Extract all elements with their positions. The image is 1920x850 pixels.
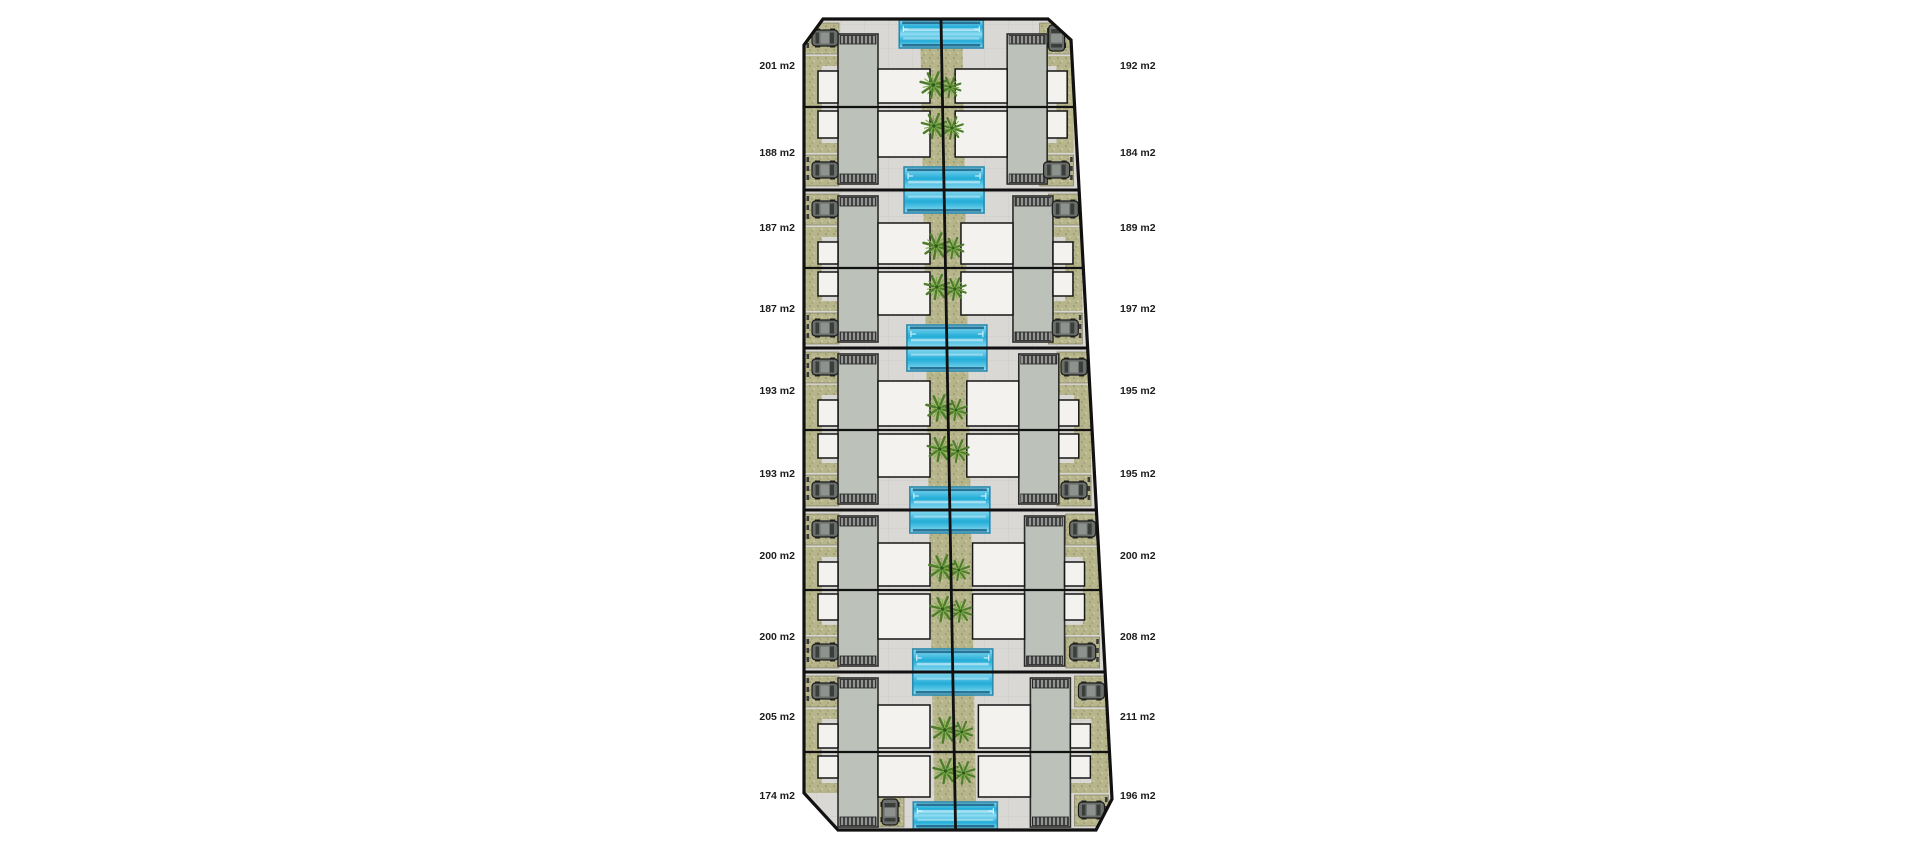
house-room [1047, 111, 1067, 138]
house-room [1059, 434, 1079, 458]
hedge-icon [1079, 315, 1082, 320]
hedge-icon [807, 648, 810, 653]
hedge-icon [807, 363, 810, 368]
house-room [1053, 242, 1073, 264]
hedge-icon [807, 214, 810, 219]
terrace-steps [840, 680, 876, 689]
plot-area-label-right-9: 211 m2 [1120, 711, 1155, 723]
hedge-icon [807, 157, 810, 162]
hedge-icon [807, 175, 810, 180]
hedge-icon [1096, 657, 1099, 662]
hedge-icon [1079, 333, 1082, 338]
hedge-icon [807, 486, 810, 491]
car-icon [1052, 319, 1078, 338]
car-icon [812, 520, 838, 539]
car-icon [812, 358, 838, 377]
hedge-icon [807, 534, 810, 539]
plot-area-label-right-8: 208 m2 [1120, 631, 1156, 643]
plot-area-label-left-10: 174 m2 [759, 790, 795, 802]
terrace-steps [1015, 198, 1051, 207]
hedge-icon [807, 525, 810, 530]
car-icon [1052, 200, 1078, 219]
hedge-icon [807, 687, 810, 692]
hedge-icon [807, 333, 810, 338]
house-room [878, 111, 930, 157]
terrace-steps [1027, 518, 1063, 527]
house-room [955, 69, 1007, 103]
car-icon [812, 319, 838, 338]
house-room [818, 724, 838, 748]
hedge-icon [807, 477, 810, 482]
house-room [818, 756, 838, 778]
house-room [973, 594, 1025, 639]
hedge-icon [1088, 495, 1091, 500]
hedge-icon [807, 205, 810, 210]
hedge-icon [1096, 648, 1099, 653]
terrace-steps [1021, 494, 1057, 503]
terrace-steps [1009, 36, 1045, 45]
house-roof [838, 34, 878, 184]
hedge-icon [1088, 486, 1091, 491]
plot-area-label-right-7: 200 m2 [1120, 550, 1156, 562]
hedge-icon [807, 495, 810, 500]
house-room [1065, 594, 1085, 620]
house-room [967, 381, 1019, 426]
plot-area-label-left-8: 200 m2 [759, 631, 795, 643]
plot-area-label-left-1: 201 m2 [759, 60, 795, 72]
terrace-steps [840, 198, 876, 207]
plot-area-label-left-5: 193 m2 [759, 385, 795, 397]
terrace-steps [840, 174, 876, 183]
hedge-icon [807, 696, 810, 701]
house-room [878, 434, 930, 477]
house-room [818, 562, 838, 586]
house-room [1059, 400, 1079, 426]
plot-area-label-right-2: 184 m2 [1120, 147, 1156, 159]
hedge-icon [807, 324, 810, 329]
house-room [1047, 71, 1067, 103]
house-room [878, 272, 930, 315]
house-room [878, 381, 930, 426]
car-icon [1061, 481, 1087, 500]
house-roof [1007, 34, 1047, 184]
plot-area-label-left-7: 200 m2 [759, 550, 795, 562]
terrace-steps [840, 36, 876, 45]
car-icon [812, 643, 838, 662]
terrace-steps [840, 332, 876, 341]
hedge-icon [1096, 639, 1099, 644]
house-room [978, 705, 1030, 748]
house-room [878, 69, 930, 103]
terrace-steps [840, 656, 876, 665]
car-icon [1070, 520, 1096, 539]
hedge-icon [807, 639, 810, 644]
hedge-icon [807, 678, 810, 683]
terrace-steps [840, 494, 876, 503]
hedge-icon [807, 354, 810, 359]
terrace-steps [1021, 356, 1057, 365]
hedge-icon [1070, 166, 1073, 171]
car-icon [812, 200, 838, 219]
house-room [818, 71, 838, 103]
car-icon [1078, 682, 1104, 701]
plot-area-label-right-3: 189 m2 [1120, 222, 1156, 234]
car-icon [812, 682, 838, 701]
terrace-steps [1009, 174, 1045, 183]
house-room [961, 223, 1013, 264]
house-room [973, 543, 1025, 586]
plot-area-label-right-10: 196 m2 [1120, 790, 1156, 802]
terrace-steps [1032, 817, 1068, 826]
house-room [1065, 562, 1085, 586]
plot-area-label-left-9: 205 m2 [759, 711, 795, 723]
hedge-icon [1105, 797, 1108, 802]
hedge-icon [807, 372, 810, 377]
car-icon [812, 161, 838, 180]
plot-area-label-left-4: 187 m2 [759, 303, 795, 315]
car-icon [1070, 643, 1096, 662]
house-room [878, 756, 930, 797]
site-plan: 201 m2188 m2187 m2187 m2193 m2193 m2200 … [0, 0, 1920, 850]
car-icon [812, 481, 838, 500]
hedge-icon [1070, 25, 1073, 30]
plot-area-label-right-5: 195 m2 [1120, 385, 1156, 397]
hedge-icon [1088, 477, 1091, 482]
terrace-steps [840, 518, 876, 527]
car-icon [1061, 358, 1087, 377]
house-room [818, 400, 838, 426]
site-plan-page: 201 m2188 m2187 m2187 m2193 m2193 m2200 … [0, 0, 1920, 850]
hedge-icon [807, 25, 810, 30]
house-room [818, 594, 838, 620]
house-room [878, 543, 930, 586]
plot-area-label-left-2: 188 m2 [759, 147, 795, 159]
house-room [878, 594, 930, 639]
hedge-icon [1105, 815, 1108, 820]
house-room [1070, 756, 1090, 778]
terrace-steps [840, 356, 876, 365]
hedge-icon [807, 166, 810, 171]
house-room [878, 705, 930, 748]
hedge-icon [807, 315, 810, 320]
plot-area-label-right-4: 197 m2 [1120, 303, 1156, 315]
house-room [818, 111, 838, 138]
house-room [878, 223, 930, 264]
house-room [961, 272, 1013, 315]
plot-area-label-left-3: 187 m2 [759, 222, 795, 234]
plot-area-label-right-6: 195 m2 [1120, 468, 1156, 480]
house-room [818, 242, 838, 264]
house-room [1070, 724, 1090, 748]
house-room [1053, 272, 1073, 296]
hedge-icon [807, 516, 810, 521]
terrace-steps [840, 817, 876, 826]
hedge-icon [1079, 324, 1082, 329]
terrace-steps [1032, 680, 1068, 689]
car-icon [1078, 801, 1104, 820]
hedge-icon [1070, 175, 1073, 180]
plot-area-label-left-6: 193 m2 [759, 468, 795, 480]
site-interior [800, 19, 1120, 830]
house-room [978, 756, 1030, 797]
hedge-icon [1070, 157, 1073, 162]
house-room [818, 272, 838, 296]
house-room [955, 111, 1007, 157]
hedge-icon [807, 196, 810, 201]
house-room [818, 434, 838, 458]
hedge-icon [807, 657, 810, 662]
terrace-steps [1015, 332, 1051, 341]
car-icon [1044, 161, 1070, 180]
car-icon [881, 799, 900, 825]
house-room [967, 434, 1019, 477]
plot-area-label-right-1: 192 m2 [1120, 60, 1156, 72]
terrace-steps [1027, 656, 1063, 665]
